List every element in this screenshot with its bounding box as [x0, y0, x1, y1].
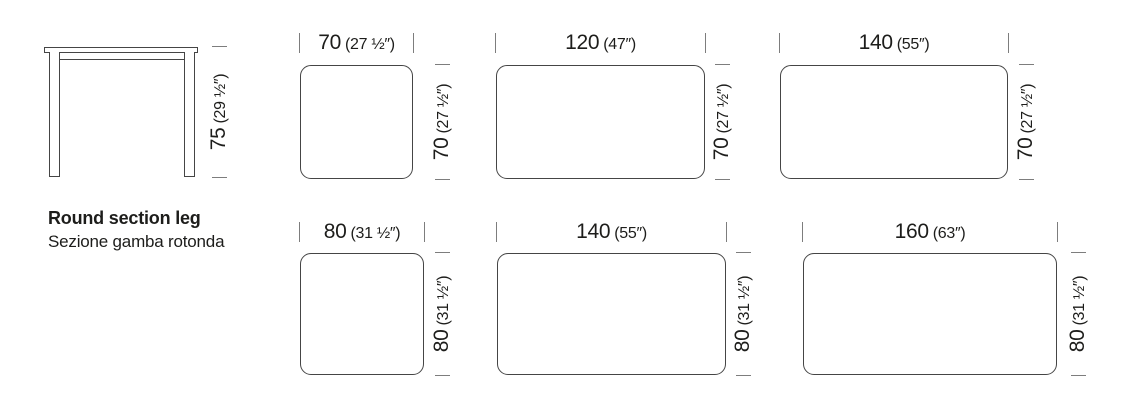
width-inches: (47″): [603, 36, 636, 53]
width-value: 80: [324, 220, 347, 243]
width-inches: (63″): [933, 225, 966, 242]
depth-value: 70: [710, 138, 733, 161]
dimension-tick: [299, 222, 300, 242]
depth-dimension: 80(31 ½″): [1064, 253, 1092, 375]
dimension-tick: [1019, 64, 1034, 65]
width-dimension-label: 140(55″): [859, 32, 930, 54]
tabletop-outline-160x80: [803, 253, 1057, 375]
tabletop-outline-120x70: [496, 65, 705, 179]
width-value: 140: [859, 31, 893, 54]
dimension-tick: [212, 177, 227, 178]
dimension-tick: [212, 46, 227, 47]
table-leg-left: [49, 52, 60, 177]
apron-line: [60, 59, 185, 60]
width-dimension: 140(55″): [780, 30, 1008, 56]
depth-dimension-label: 80(31 ½″): [431, 276, 453, 353]
depth-dimension: 70(27 ½″): [428, 65, 456, 179]
dimension-tick: [705, 33, 706, 53]
width-inches: (55″): [614, 225, 647, 242]
width-dimension: 140(55″): [497, 219, 726, 245]
width-value: 70: [318, 31, 341, 54]
dimension-tick: [1057, 222, 1058, 242]
caption: Round section leg Sezione gamba rotonda: [48, 206, 224, 254]
width-dimension-label: 70(27 ½″): [318, 32, 395, 54]
depth-dimension: 70(27 ½″): [708, 65, 736, 179]
dimension-tick: [435, 375, 450, 376]
dimension-tick: [413, 33, 414, 53]
width-inches: (27 ½″): [345, 36, 395, 53]
tabletop-edge: [44, 47, 198, 53]
width-inches: (55″): [897, 36, 930, 53]
dimension-tick: [1071, 375, 1086, 376]
depth-inches: (27 ½″): [1019, 84, 1036, 134]
width-dimension: 160(63″): [803, 219, 1057, 245]
depth-dimension: 80(31 ½″): [428, 253, 456, 375]
width-dimension: 120(47″): [496, 30, 705, 56]
depth-dimension-label: 80(31 ½″): [1067, 276, 1089, 353]
width-value: 160: [895, 220, 929, 243]
depth-dimension-label: 70(27 ½″): [431, 84, 453, 161]
depth-dimension-label: 80(31 ½″): [732, 276, 754, 353]
width-dimension-label: 80(31 ½″): [324, 221, 401, 243]
width-inches: (31 ½″): [350, 225, 400, 242]
caption-english: Round section leg: [48, 206, 224, 230]
height-value: 75: [207, 128, 230, 151]
dimension-tick: [496, 222, 497, 242]
dimension-tick: [1071, 252, 1086, 253]
depth-value: 80: [430, 330, 453, 353]
dimension-tick: [299, 33, 300, 53]
depth-value: 80: [1066, 330, 1089, 353]
depth-value: 80: [731, 330, 754, 353]
dimension-tick: [715, 64, 730, 65]
width-dimension: 70(27 ½″): [300, 30, 413, 56]
depth-dimension-label: 70(27 ½″): [1015, 84, 1037, 161]
tabletop-outline-80x80: [300, 253, 424, 375]
width-value: 120: [565, 31, 599, 54]
dimension-tick: [435, 179, 450, 180]
width-dimension-label: 140(55″): [576, 221, 647, 243]
table-leg-right: [184, 52, 195, 177]
tabletop-outline-140x70: [780, 65, 1008, 179]
dimension-tick: [736, 375, 751, 376]
dimension-tick: [779, 33, 780, 53]
depth-inches: (31 ½″): [736, 276, 753, 326]
depth-inches: (31 ½″): [435, 276, 452, 326]
width-value: 140: [576, 220, 610, 243]
depth-dimension: 70(27 ½″): [1012, 65, 1040, 179]
width-dimension-label: 120(47″): [565, 32, 636, 54]
depth-inches: (27 ½″): [715, 84, 732, 134]
dimension-tick: [726, 222, 727, 242]
width-dimension-label: 160(63″): [895, 221, 966, 243]
height-inches: (29 ½″): [212, 74, 229, 124]
dimension-tick: [1019, 179, 1034, 180]
depth-value: 70: [1014, 138, 1037, 161]
dimension-tick: [435, 64, 450, 65]
depth-inches: (27 ½″): [435, 84, 452, 134]
caption-italian: Sezione gamba rotonda: [48, 230, 224, 254]
depth-inches: (31 ½″): [1071, 276, 1088, 326]
depth-dimension-label: 70(27 ½″): [711, 84, 733, 161]
dimension-diagram: 75(29 ½″) Round section leg Sezione gamb…: [0, 0, 1126, 402]
depth-value: 70: [430, 138, 453, 161]
dimension-tick: [802, 222, 803, 242]
dimension-tick: [424, 222, 425, 242]
dimension-tick: [435, 252, 450, 253]
dimension-tick: [715, 179, 730, 180]
width-dimension: 80(31 ½″): [300, 219, 424, 245]
height-dimension-label: 75(29 ½″): [208, 74, 230, 151]
tabletop-outline-140x80: [497, 253, 726, 375]
height-dimension: 75(29 ½″): [205, 47, 233, 177]
dimension-tick: [1008, 33, 1009, 53]
dimension-tick: [736, 252, 751, 253]
depth-dimension: 80(31 ½″): [729, 253, 757, 375]
dimension-tick: [495, 33, 496, 53]
tabletop-outline-70x70: [300, 65, 413, 179]
